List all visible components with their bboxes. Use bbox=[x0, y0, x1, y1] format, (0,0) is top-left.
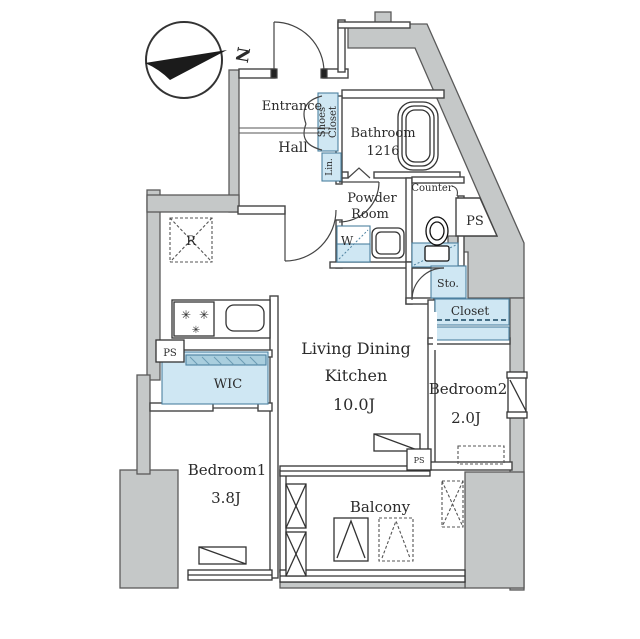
balcony-label: Balcony bbox=[350, 498, 411, 516]
wall-bottom-left-block bbox=[120, 470, 178, 588]
washbasin-bowl bbox=[376, 232, 400, 254]
bedroom2-label: Bedroom2 bbox=[429, 380, 508, 398]
bedroom1-label: Bedroom1 bbox=[188, 461, 267, 479]
stove-burner-icon: ✳ bbox=[192, 325, 200, 336]
ps-small-label: PS bbox=[414, 456, 425, 465]
wall-balcony-bottom bbox=[280, 582, 465, 588]
toilet-tank bbox=[425, 246, 449, 261]
refrigerator-label: R bbox=[186, 234, 197, 249]
wall-ldk-bedroom1 bbox=[270, 296, 278, 578]
wall-left-lower bbox=[137, 375, 150, 474]
powder-room-label-1: Powder bbox=[347, 191, 397, 206]
hall-label: Hall bbox=[278, 140, 308, 156]
entrance-door-cap-left bbox=[271, 69, 277, 78]
wic-label: WIC bbox=[214, 377, 242, 392]
wall-bottom-right-block bbox=[465, 472, 524, 588]
ldk-label-1: Living Dining bbox=[301, 339, 410, 358]
stove-burner-icon: ✳ bbox=[199, 308, 209, 322]
storage-label: Sto. bbox=[437, 277, 459, 290]
closet-lower bbox=[435, 327, 509, 340]
balcony-dashed-hatch bbox=[379, 518, 413, 561]
toilet-bowl-inner bbox=[430, 222, 444, 240]
kitchen-sink bbox=[226, 305, 264, 331]
wall-entrance-left bbox=[229, 70, 239, 212]
washer-label: W bbox=[341, 234, 354, 248]
shoes-closet-label-1: Shoes bbox=[317, 107, 328, 137]
stove-burner-icon: ✳ bbox=[181, 308, 191, 322]
counter-label: Counter bbox=[411, 183, 452, 194]
floor-plan: N ✳ ✳ ✳ Entrance Hall Shoes Closet Lin. … bbox=[0, 0, 640, 639]
counter-pointer bbox=[452, 186, 457, 196]
balcony-dashed-hatch-triangle bbox=[382, 521, 410, 558]
powder-room-label-2: Room bbox=[351, 207, 389, 222]
wall-bedroom2-bottom bbox=[428, 462, 512, 470]
ldk-label-2: Kitchen bbox=[325, 366, 388, 385]
balcony-hatch-box bbox=[334, 518, 368, 561]
compass-north-label: N bbox=[230, 45, 252, 64]
wall-entrance-top-left bbox=[239, 69, 275, 78]
wall-bathroom-top bbox=[342, 90, 444, 98]
bedroom2-door-cap-top bbox=[507, 372, 527, 378]
bathroom-size: 1216 bbox=[366, 144, 399, 159]
wall-bath-powder-stub bbox=[342, 172, 348, 178]
floor-plan-page: N ✳ ✳ ✳ Entrance Hall Shoes Closet Lin. … bbox=[0, 0, 640, 639]
bedroom2-dashed-box bbox=[458, 446, 504, 464]
shoes-closet-label-2: Closet bbox=[328, 106, 339, 138]
bedroom2-door-cap-bottom bbox=[507, 412, 527, 418]
wall-meter-box-horizontal bbox=[338, 22, 410, 28]
ldk-door-arc bbox=[285, 210, 336, 261]
entrance-door-arc bbox=[274, 22, 324, 72]
ps-top-label: PS bbox=[466, 214, 484, 229]
wall-powder-bottom bbox=[330, 262, 412, 268]
bedroom1-size: 3.8J bbox=[211, 489, 241, 507]
ldk-size: 10.0J bbox=[333, 395, 375, 414]
bathroom-label: Bathroom bbox=[350, 126, 415, 141]
linen-label: Lin. bbox=[325, 158, 335, 176]
entrance-door-cap-right bbox=[321, 69, 327, 78]
bedroom2-size: 2.0J bbox=[451, 409, 481, 427]
ps-left-label: PS bbox=[163, 348, 177, 359]
bathroom-fold-door bbox=[348, 168, 370, 178]
wic-sliding-door bbox=[186, 355, 266, 365]
wall-hall-bottom bbox=[147, 195, 239, 212]
entrance-label: Entrance bbox=[262, 99, 323, 114]
wall-hall-ldk bbox=[238, 206, 285, 214]
closet-label: Closet bbox=[451, 304, 490, 318]
wall-balcony-left bbox=[280, 470, 286, 572]
